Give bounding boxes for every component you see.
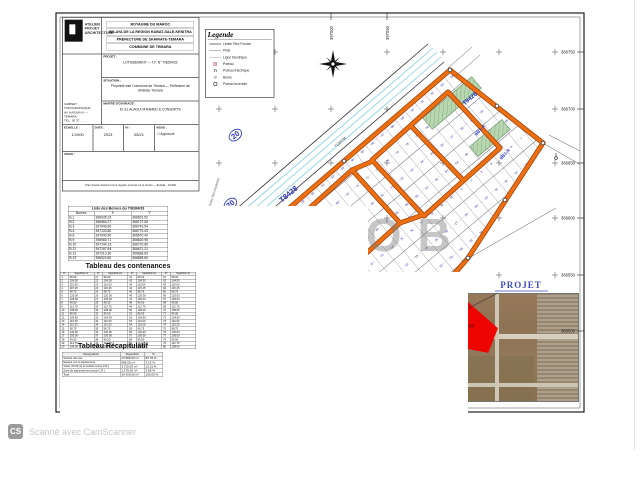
administration-lines: ROYAUME DU MAROC WILAYA DE LA REGION RAB… [102, 18, 199, 54]
table-row: Total30 428.00 m²100.00 % [62, 373, 162, 377]
title-block-footnote: Plan dressé d'après le levé régulier exé… [63, 181, 199, 189]
projet-label: PROJET : [103, 55, 117, 58]
borne-symbol-icon: ⊙ [208, 75, 223, 80]
situation-text: Propriété sise Commune de Témara — Préfe… [104, 84, 197, 93]
svg-text:366700: 366700 [561, 107, 576, 112]
legend-item-label: Borne [223, 75, 232, 79]
firm-cell: ATELIER PROJET ARCHITECTURE [63, 18, 102, 54]
scale-cell: ECHELLE : 1/1000 [63, 125, 94, 151]
number-cell: N° : 05/21 [124, 125, 155, 151]
recap-table: DésignationSuperficie%Surface des lots24… [62, 352, 364, 427]
legend-item-label: Poteau Incendie [223, 82, 247, 86]
legend-items: Limite Titre FoncierPisteLigne Electriqu… [208, 41, 272, 88]
legend-item: Poteau Incendie [208, 81, 272, 88]
contenances-title: Tableau des contenances [60, 263, 196, 270]
legend-title: Legende [208, 30, 272, 39]
situation-box: SITUATION : Propriété sise Commune de Té… [102, 78, 199, 102]
moa-text: M. EL ALAOUI M'HAMED & CONSORTS [104, 107, 197, 111]
firm-logo [65, 20, 83, 42]
legend-item-label: Piste [223, 49, 230, 53]
cabinet-address: CABINET TOPOGRAPHIQUE AV. HASSAN II — TE… [64, 102, 100, 122]
legend-item: ⊙Borne [208, 74, 272, 81]
moa-label: MAITRE D'OUVRAGE : [103, 102, 135, 105]
visas-box: VISAS : [63, 152, 199, 181]
legend: Legende Limite Titre FoncierPisteLigne E… [205, 29, 269, 95]
table-row: B.13396924.50366655.60 [68, 256, 168, 260]
legend-item-label: Poteau [223, 62, 234, 66]
number-value: 05/21 [125, 132, 152, 137]
legend-item: Poteau [208, 61, 272, 68]
projet-text: LOTISSEMENT — T.F. N° T/8264/33 [104, 60, 197, 64]
legend-item: Ligne Electrique [208, 54, 272, 61]
camscanner-icon: CS [8, 424, 23, 439]
poteau-symbol-icon [208, 62, 223, 65]
scale-value: 1/1000 [64, 132, 91, 137]
svg-text:366500: 366500 [561, 329, 576, 334]
legend-item-label: Limite Titre Foncier [223, 42, 251, 46]
date-value: 2021 [95, 132, 122, 137]
svg-text:366550: 366550 [561, 273, 576, 278]
camscanner-text: Scanné avec CamScanner [29, 427, 136, 437]
visa-check-cell: VISAS : ☐ Approuvé [155, 125, 199, 151]
svg-text:366650: 366650 [561, 161, 576, 166]
visa-checkbox: ☐ Approuvé [157, 132, 175, 136]
legend-item-label: Ligne Electrique [223, 55, 247, 59]
incendie-symbol-icon [208, 82, 223, 86]
projet-callout: PROJET [459, 280, 548, 313]
recap-title: Tableau Récapitulatif [62, 343, 164, 350]
moa-box: MAITRE D'OUVRAGE : M. EL ALAOUI M'HAMED … [102, 101, 199, 124]
date-cell: DATE : 2021 [93, 125, 124, 151]
legend-item-label: Poteau Electrique [223, 69, 249, 73]
scanned-page: 1234567891011121314151617181920212223242… [0, 0, 640, 450]
piste-symbol-icon [208, 50, 223, 51]
camscanner-footer: CS Scanné avec CamScanner [8, 424, 136, 439]
coordinate-labels: 366750366700366650366600366550366500 [561, 50, 584, 334]
title-block: ATELIER PROJET ARCHITECTURE ROYAUME DU M… [62, 17, 198, 190]
cabinet-cell: CABINET TOPOGRAPHIQUE AV. HASSAN II — TE… [63, 54, 102, 124]
svg-text:PROJET: PROJET [500, 280, 542, 290]
pylone-symbol-icon: Π [208, 69, 223, 72]
situation-label: SITUATION : [103, 79, 121, 82]
title-block-header: ATELIER PROJET ARCHITECTURE ROYAUME DU M… [63, 18, 199, 55]
projet-box: PROJET : LOTISSEMENT — T.F. N° T/8264/33 [102, 54, 199, 78]
svg-text:366750: 366750 [561, 50, 576, 55]
svg-text:366600: 366600 [561, 216, 576, 221]
solid-symbol-icon [208, 44, 223, 45]
legend-item: ΠPoteau Electrique [208, 67, 272, 74]
legend-item: Limite Titre Foncier [208, 41, 272, 48]
legend-item: Piste [208, 47, 272, 54]
